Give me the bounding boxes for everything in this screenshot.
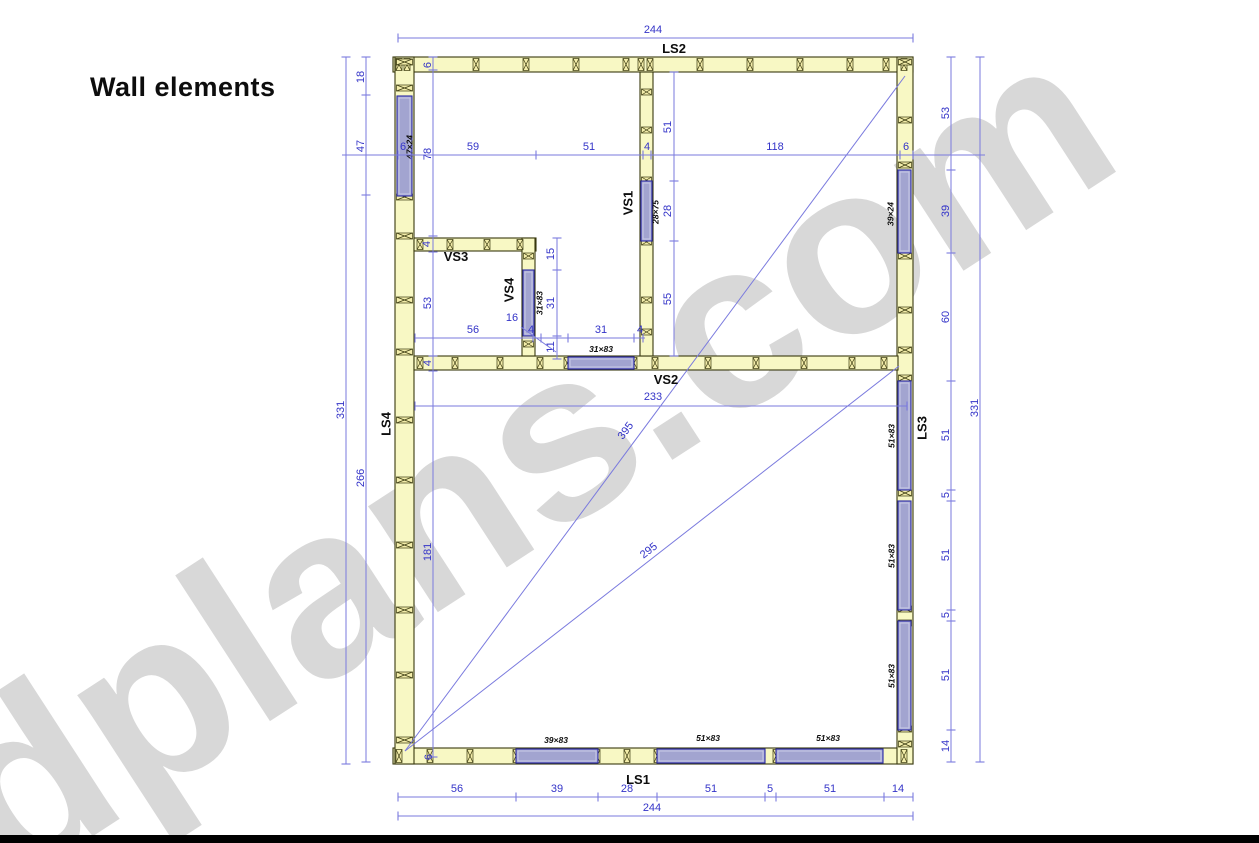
footer-bar [0,835,1259,843]
wall-name-label: VS1 [620,191,635,216]
dimension-label: 331 [969,399,981,417]
panel-size-label: 39×24 [885,202,895,226]
dimension-label: 56 [467,324,479,336]
dimension-label: 4 [421,241,433,247]
wall-name-label: LS2 [662,41,686,56]
dimension-label: 5 [940,612,952,618]
panel-size-label: 51×83 [816,733,840,743]
leader-label: 16 [506,312,518,324]
wall-name-label: LS3 [914,416,929,440]
dimension-label: 331 [335,401,347,419]
dimension-label: 244 [644,24,662,36]
dimension-label: 181 [422,543,434,561]
floor-plan-drawing: dplans.com47×2428×7539×2431×8331×8339×83… [0,0,1259,843]
wall-name-label: VS3 [444,249,469,264]
dimension-label: 6 [422,62,434,68]
dimension-label: 5 [940,492,952,498]
dimension-label: 28 [662,205,674,217]
dimension-label: 266 [355,469,367,487]
dimension-label: 6 [903,141,909,153]
panel-size-label: 31×83 [534,291,544,315]
diagonal-dimension-label: 295 [638,541,660,562]
wall-name-label: LS4 [378,411,393,436]
dimension-label: 56 [451,783,463,795]
dimension-label: 51 [662,121,674,133]
dimension-label: 51 [940,669,952,681]
panel-size-label: 39×83 [544,735,568,745]
dimension-label: 51 [940,549,952,561]
dimension-label: 53 [422,297,434,309]
dimension-label: 14 [940,740,952,752]
wall-name-label: LS1 [626,772,650,787]
dimension-label: 55 [662,293,674,305]
wall-name-label: VS2 [654,372,679,387]
dimension-label: 18 [355,71,367,83]
dimension-label: 31 [545,297,557,309]
dimension-label: 47 [355,140,367,152]
dimension-label: 51 [705,783,717,795]
dimension-label: 60 [940,311,952,323]
panel-size-label: 51×83 [696,733,720,743]
floor-plan-svg: dplans.com47×2428×7539×2431×8331×8339×83… [0,0,1259,843]
dimension-label: 14 [892,783,904,795]
panel-size-label: 51×83 [886,424,896,448]
dimension-label: 51 [583,141,595,153]
dimension-label: 39 [940,205,952,217]
dimension-label: 6 [400,141,406,153]
dimension-label: 59 [467,141,479,153]
dimension-label: 6 [423,754,435,760]
dimension-label: 39 [551,783,563,795]
dimension-label: 51 [824,783,836,795]
panel-size-label: 28×75 [650,200,660,225]
dimension-label: 5 [767,783,773,795]
dimension-label: 4 [637,324,643,336]
dimension-label: 15 [545,248,557,260]
dimension-label: 4 [644,141,650,153]
dimension-label: 53 [940,107,952,119]
dimension-label: 31 [595,324,607,336]
dimension-label: 78 [422,148,434,160]
page: Wall elements dplans.com47×2428×7539×243… [0,0,1259,843]
panel-size-label: 51×83 [886,544,896,568]
dimension-label: 51 [940,429,952,441]
dimension-label: 244 [643,802,661,814]
watermark-text: dplans.com [0,0,1156,843]
wall-name-label: VS4 [501,277,516,302]
dimension-label: 4 [422,360,434,366]
panel-size-label: 51×83 [886,664,896,688]
dimension-label: 233 [644,391,662,403]
panel-size-label: 31×83 [589,344,613,354]
dimension-label: 118 [766,141,784,153]
